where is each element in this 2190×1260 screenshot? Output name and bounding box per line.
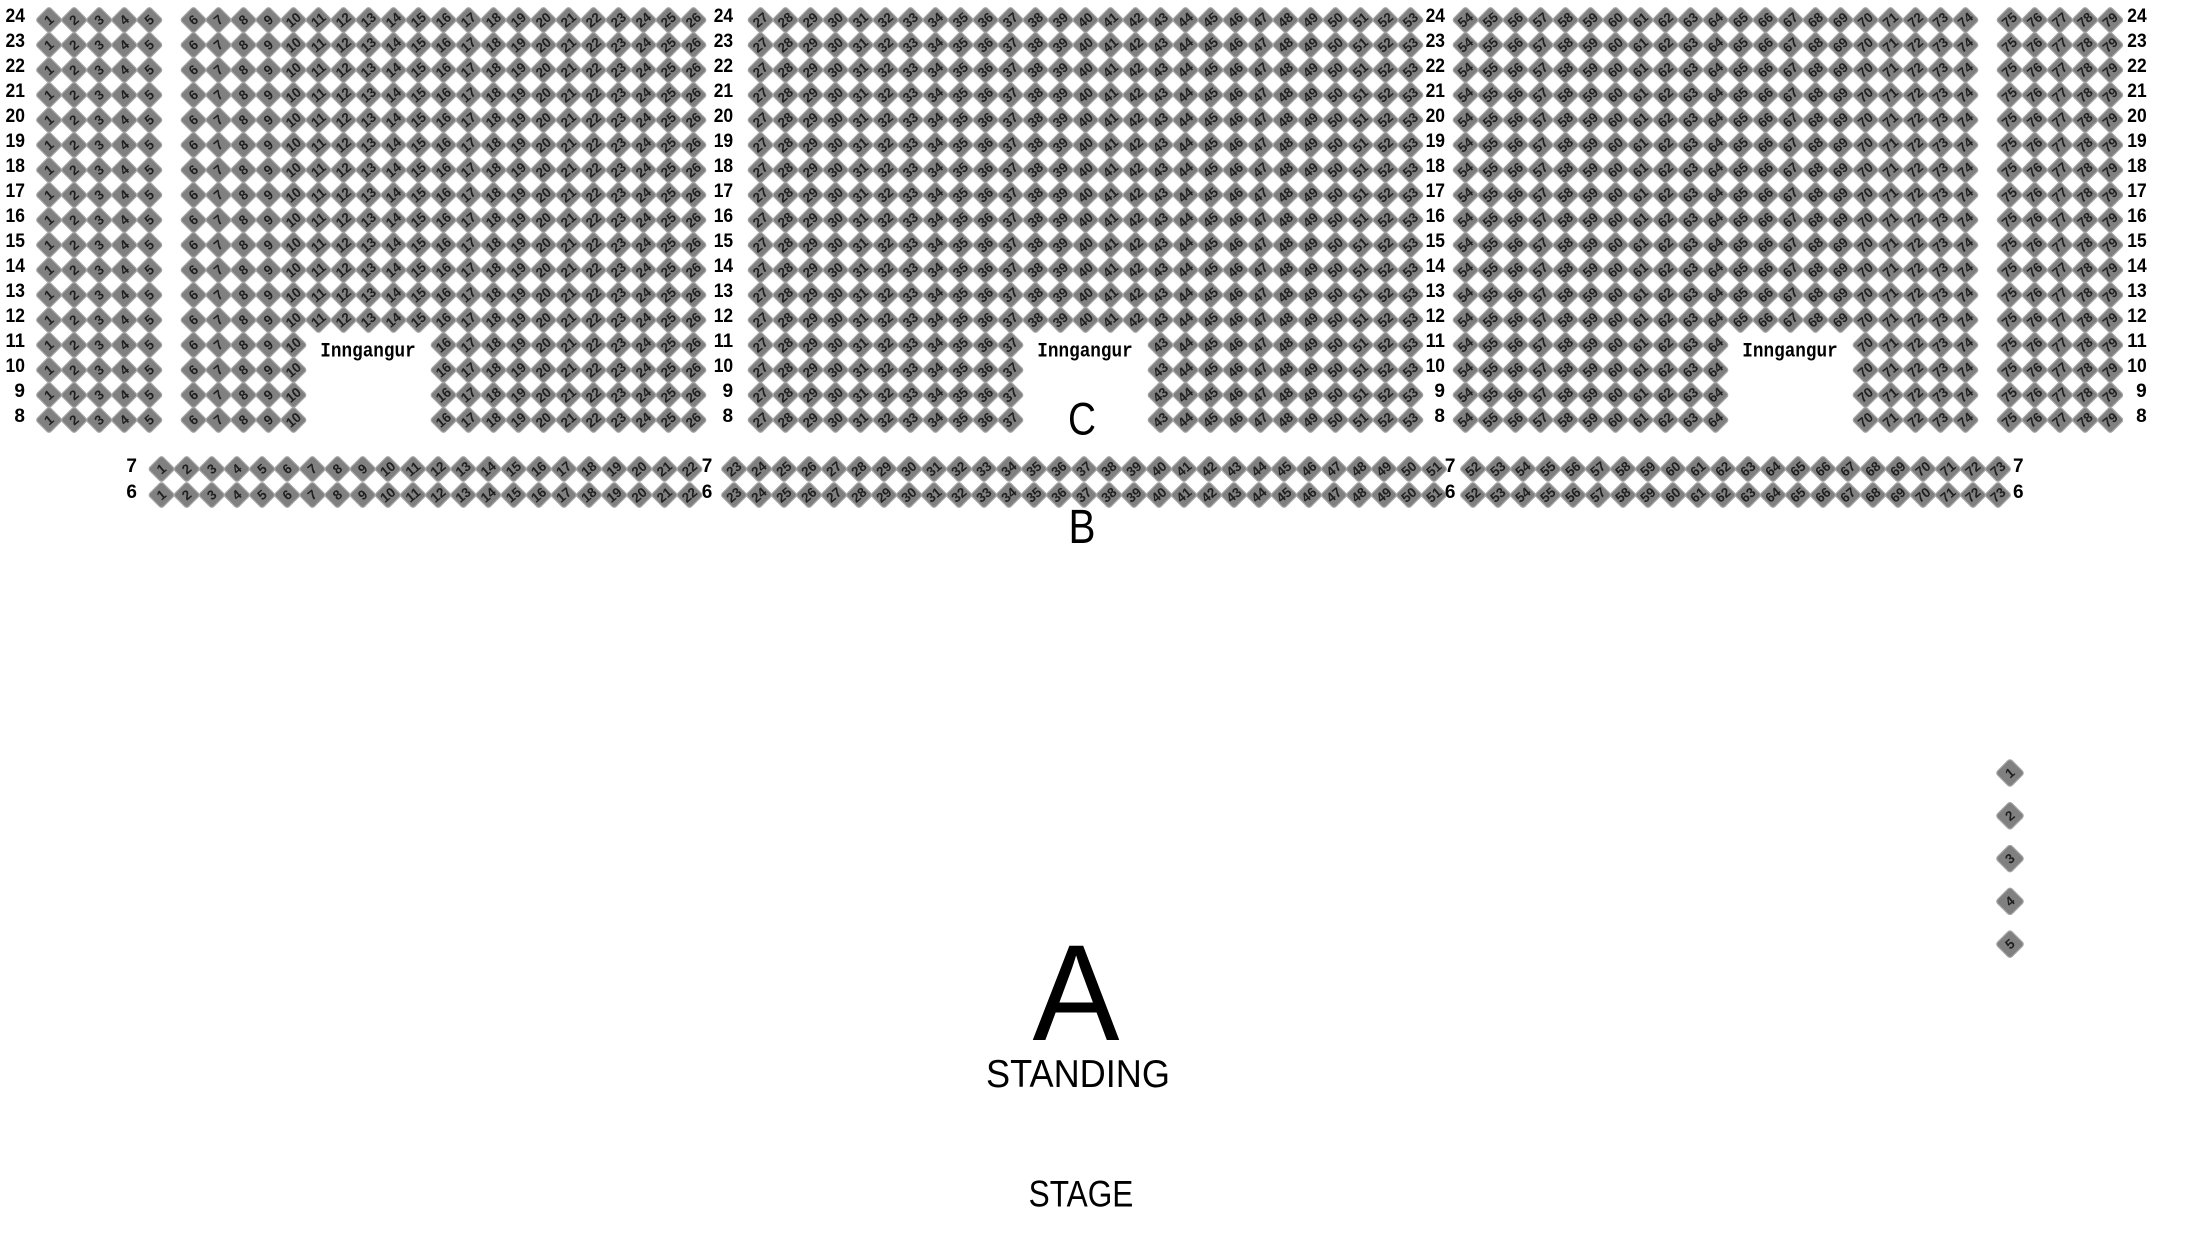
svg-text:40: 40	[1075, 84, 1096, 105]
svg-text:24: 24	[633, 234, 655, 255]
svg-text:50: 50	[1325, 59, 1346, 80]
svg-text:STANDING: STANDING	[986, 1053, 1170, 1096]
svg-text:Inngangur: Inngangur	[320, 341, 416, 364]
svg-text:74: 74	[1955, 384, 1977, 405]
svg-text:48: 48	[1275, 59, 1297, 80]
svg-text:50: 50	[1325, 134, 1346, 155]
svg-text:24: 24	[633, 109, 655, 130]
svg-text:61: 61	[1630, 284, 1652, 305]
svg-text:27: 27	[823, 484, 844, 505]
svg-text:54: 54	[1512, 484, 1534, 505]
svg-text:76: 76	[2024, 284, 2046, 305]
svg-text:29: 29	[800, 234, 821, 255]
svg-text:76: 76	[2024, 109, 2046, 130]
svg-text:76: 76	[2024, 234, 2046, 255]
svg-text:76: 76	[2024, 359, 2046, 380]
svg-text:29: 29	[800, 309, 821, 330]
svg-text:70: 70	[1855, 109, 1876, 130]
svg-text:69: 69	[1830, 109, 1851, 130]
svg-text:64: 64	[1705, 184, 1727, 205]
svg-text:14: 14	[383, 309, 405, 330]
svg-text:72: 72	[1905, 359, 1926, 380]
svg-text:78: 78	[2075, 284, 2097, 305]
svg-text:57: 57	[1530, 234, 1551, 255]
svg-text:13: 13	[453, 458, 475, 479]
svg-text:36: 36	[975, 309, 997, 330]
svg-text:43: 43	[1150, 209, 1172, 230]
svg-text:25: 25	[658, 359, 680, 380]
svg-text:70: 70	[1855, 34, 1876, 55]
svg-text:37: 37	[1000, 9, 1021, 30]
svg-text:71: 71	[1880, 109, 1902, 130]
svg-text:45: 45	[1200, 384, 1222, 405]
svg-text:39: 39	[1050, 309, 1071, 330]
svg-text:12: 12	[333, 34, 354, 55]
svg-text:69: 69	[1830, 234, 1851, 255]
svg-text:34: 34	[925, 209, 947, 230]
svg-text:34: 34	[925, 109, 947, 130]
svg-text:40: 40	[1075, 309, 1096, 330]
svg-text:16: 16	[433, 359, 455, 380]
svg-text:34: 34	[925, 34, 947, 55]
svg-text:48: 48	[1275, 259, 1297, 280]
svg-text:40: 40	[1075, 134, 1096, 155]
svg-text:74: 74	[1955, 259, 1977, 280]
svg-text:33: 33	[900, 334, 922, 355]
svg-text:57: 57	[1530, 84, 1551, 105]
svg-text:44: 44	[1175, 159, 1197, 180]
svg-text:59: 59	[1580, 359, 1601, 380]
svg-text:57: 57	[1530, 109, 1551, 130]
svg-text:32: 32	[875, 209, 896, 230]
svg-text:67: 67	[1780, 234, 1801, 255]
svg-text:67: 67	[1780, 109, 1801, 130]
svg-text:43: 43	[1150, 9, 1172, 30]
svg-text:36: 36	[975, 234, 997, 255]
svg-text:78: 78	[2075, 259, 2097, 280]
svg-text:76: 76	[2024, 309, 2046, 330]
svg-text:60: 60	[1605, 184, 1626, 205]
svg-text:49: 49	[1300, 409, 1321, 430]
svg-text:72: 72	[1905, 409, 1926, 430]
svg-text:58: 58	[1612, 458, 1634, 479]
svg-text:53: 53	[1400, 134, 1422, 155]
svg-text:16: 16	[528, 458, 550, 479]
svg-text:42: 42	[1125, 34, 1146, 55]
svg-text:36: 36	[975, 384, 997, 405]
svg-text:19: 19	[508, 209, 529, 230]
svg-text:68: 68	[1805, 184, 1827, 205]
svg-text:47: 47	[1250, 334, 1271, 355]
svg-text:24: 24	[633, 384, 655, 405]
svg-text:19: 19	[508, 59, 529, 80]
svg-text:57: 57	[1530, 334, 1551, 355]
svg-text:19: 19	[508, 409, 529, 430]
svg-text:60: 60	[1605, 134, 1626, 155]
svg-text:37: 37	[1000, 184, 1021, 205]
svg-text:60: 60	[1605, 159, 1626, 180]
svg-text:76: 76	[2024, 184, 2046, 205]
svg-text:48: 48	[1275, 284, 1297, 305]
svg-text:22: 22	[583, 9, 604, 30]
svg-text:50: 50	[1325, 359, 1346, 380]
svg-text:70: 70	[1855, 209, 1876, 230]
svg-text:64: 64	[1705, 259, 1727, 280]
svg-text:6: 6	[1445, 482, 1456, 503]
svg-text:53: 53	[1400, 209, 1422, 230]
svg-text:11: 11	[308, 159, 329, 180]
svg-text:56: 56	[1505, 184, 1527, 205]
svg-text:54: 54	[1455, 209, 1477, 230]
svg-text:40: 40	[1075, 234, 1096, 255]
svg-text:27: 27	[750, 59, 771, 80]
svg-text:27: 27	[750, 234, 771, 255]
svg-text:31: 31	[850, 59, 872, 80]
svg-text:31: 31	[850, 334, 872, 355]
svg-text:20: 20	[533, 234, 554, 255]
svg-text:52: 52	[1375, 384, 1396, 405]
svg-text:79: 79	[2100, 334, 2121, 355]
svg-text:79: 79	[2100, 34, 2121, 55]
svg-text:77: 77	[2049, 359, 2070, 380]
svg-text:21: 21	[558, 284, 580, 305]
svg-text:41: 41	[1100, 134, 1122, 155]
svg-text:14: 14	[383, 259, 405, 280]
svg-text:28: 28	[848, 484, 870, 505]
svg-text:59: 59	[1580, 109, 1601, 130]
svg-text:16: 16	[433, 384, 455, 405]
svg-text:75: 75	[1999, 9, 2021, 30]
svg-text:39: 39	[1050, 259, 1071, 280]
svg-text:35: 35	[1023, 484, 1045, 505]
svg-text:55: 55	[1480, 334, 1502, 355]
svg-text:54: 54	[1455, 359, 1477, 380]
svg-text:70: 70	[1855, 184, 1876, 205]
svg-text:7: 7	[702, 456, 713, 477]
svg-text:35: 35	[950, 309, 972, 330]
svg-text:72: 72	[1905, 384, 1926, 405]
svg-text:65: 65	[1730, 309, 1752, 330]
svg-text:38: 38	[1025, 84, 1047, 105]
svg-text:50: 50	[1325, 334, 1346, 355]
svg-text:73: 73	[1930, 234, 1952, 255]
svg-text:64: 64	[1705, 84, 1727, 105]
svg-text:66: 66	[1755, 84, 1777, 105]
svg-text:65: 65	[1730, 234, 1752, 255]
svg-text:30: 30	[825, 134, 846, 155]
svg-text:35: 35	[950, 59, 972, 80]
svg-text:59: 59	[1580, 59, 1601, 80]
svg-text:46: 46	[1225, 9, 1247, 30]
svg-text:13: 13	[358, 234, 380, 255]
svg-text:24: 24	[633, 84, 655, 105]
svg-text:15: 15	[408, 259, 430, 280]
svg-text:25: 25	[658, 209, 680, 230]
svg-text:43: 43	[1150, 234, 1172, 255]
svg-text:12: 12	[333, 234, 354, 255]
svg-text:44: 44	[1175, 409, 1197, 430]
svg-text:65: 65	[1730, 109, 1752, 130]
svg-text:24: 24	[748, 458, 770, 479]
svg-text:46: 46	[1225, 259, 1247, 280]
svg-text:62: 62	[1712, 458, 1733, 479]
svg-text:58: 58	[1612, 484, 1634, 505]
svg-text:72: 72	[1962, 484, 1983, 505]
svg-text:49: 49	[1300, 309, 1321, 330]
svg-text:38: 38	[1025, 284, 1047, 305]
svg-text:63: 63	[1737, 484, 1759, 505]
svg-text:70: 70	[1855, 159, 1876, 180]
svg-text:47: 47	[1250, 159, 1271, 180]
svg-text:47: 47	[1250, 384, 1271, 405]
svg-text:61: 61	[1630, 9, 1652, 30]
svg-text:18: 18	[483, 334, 505, 355]
svg-text:18: 18	[483, 159, 505, 180]
svg-text:8: 8	[723, 406, 734, 427]
svg-text:22: 22	[583, 334, 604, 355]
svg-text:45: 45	[1273, 458, 1295, 479]
svg-text:54: 54	[1512, 458, 1534, 479]
svg-text:78: 78	[2075, 184, 2097, 205]
svg-text:43: 43	[1150, 134, 1172, 155]
svg-text:18: 18	[483, 284, 505, 305]
svg-text:54: 54	[1455, 184, 1477, 205]
svg-text:60: 60	[1662, 484, 1683, 505]
svg-text:57: 57	[1530, 259, 1551, 280]
svg-text:42: 42	[1125, 184, 1146, 205]
svg-text:45: 45	[1200, 9, 1222, 30]
svg-text:41: 41	[1100, 109, 1122, 130]
svg-text:64: 64	[1705, 159, 1727, 180]
svg-text:71: 71	[1880, 309, 1902, 330]
svg-text:18: 18	[483, 84, 505, 105]
svg-text:26: 26	[683, 359, 705, 380]
svg-text:29: 29	[873, 458, 894, 479]
svg-text:17: 17	[553, 484, 574, 505]
svg-text:71: 71	[1880, 134, 1902, 155]
svg-text:51: 51	[1350, 134, 1372, 155]
svg-text:38: 38	[1025, 159, 1047, 180]
svg-text:34: 34	[925, 9, 947, 30]
svg-text:32: 32	[875, 384, 896, 405]
svg-text:15: 15	[503, 484, 525, 505]
svg-text:56: 56	[1505, 84, 1527, 105]
svg-text:21: 21	[558, 409, 580, 430]
svg-text:19: 19	[508, 109, 529, 130]
svg-text:32: 32	[948, 458, 969, 479]
svg-text:60: 60	[1605, 359, 1626, 380]
svg-text:18: 18	[714, 156, 733, 177]
svg-text:56: 56	[1505, 234, 1527, 255]
svg-text:47: 47	[1250, 309, 1271, 330]
svg-text:44: 44	[1175, 384, 1197, 405]
svg-text:31: 31	[850, 184, 872, 205]
svg-text:36: 36	[975, 184, 997, 205]
svg-text:64: 64	[1705, 109, 1727, 130]
svg-text:20: 20	[533, 259, 554, 280]
svg-text:26: 26	[683, 159, 705, 180]
svg-text:28: 28	[775, 9, 797, 30]
svg-text:76: 76	[2024, 84, 2046, 105]
svg-text:28: 28	[775, 384, 797, 405]
svg-text:30: 30	[825, 84, 846, 105]
svg-text:23: 23	[608, 234, 630, 255]
svg-text:17: 17	[458, 34, 479, 55]
svg-text:10: 10	[283, 159, 304, 180]
svg-text:75: 75	[1999, 409, 2021, 430]
svg-text:16: 16	[433, 284, 455, 305]
svg-text:52: 52	[1375, 59, 1396, 80]
svg-text:40: 40	[1075, 109, 1096, 130]
svg-text:40: 40	[1075, 284, 1096, 305]
svg-text:22: 22	[583, 59, 604, 80]
svg-text:29: 29	[800, 34, 821, 55]
svg-text:60: 60	[1605, 84, 1626, 105]
svg-text:11: 11	[308, 259, 329, 280]
svg-text:76: 76	[2024, 209, 2046, 230]
svg-text:10: 10	[283, 59, 304, 80]
svg-text:79: 79	[2100, 234, 2121, 255]
svg-text:33: 33	[900, 84, 922, 105]
svg-text:31: 31	[850, 259, 872, 280]
svg-text:Inngangur: Inngangur	[1742, 341, 1838, 364]
svg-text:51: 51	[1350, 109, 1372, 130]
svg-text:18: 18	[483, 209, 505, 230]
svg-text:41: 41	[1100, 159, 1122, 180]
svg-text:71: 71	[1880, 84, 1902, 105]
svg-text:19: 19	[508, 259, 529, 280]
svg-text:33: 33	[900, 9, 922, 30]
svg-text:74: 74	[1955, 84, 1977, 105]
svg-text:23: 23	[608, 159, 630, 180]
svg-text:56: 56	[1505, 259, 1527, 280]
svg-text:59: 59	[1580, 134, 1601, 155]
svg-text:60: 60	[1605, 34, 1626, 55]
svg-text:73: 73	[1987, 484, 2009, 505]
svg-text:34: 34	[925, 334, 947, 355]
svg-text:60: 60	[1605, 384, 1626, 405]
svg-text:29: 29	[873, 484, 894, 505]
svg-text:50: 50	[1325, 84, 1346, 105]
svg-text:79: 79	[2100, 134, 2121, 155]
svg-text:49: 49	[1300, 334, 1321, 355]
svg-text:50: 50	[1325, 34, 1346, 55]
svg-text:17: 17	[458, 184, 479, 205]
svg-text:61: 61	[1630, 309, 1652, 330]
svg-text:17: 17	[458, 109, 479, 130]
svg-text:75: 75	[1999, 134, 2021, 155]
svg-text:61: 61	[1630, 84, 1652, 105]
svg-text:56: 56	[1505, 209, 1527, 230]
svg-text:13: 13	[2127, 281, 2146, 302]
svg-text:43: 43	[1150, 409, 1172, 430]
svg-text:60: 60	[1605, 334, 1626, 355]
svg-text:42: 42	[1125, 259, 1146, 280]
svg-text:12: 12	[333, 309, 354, 330]
svg-text:72: 72	[1905, 134, 1926, 155]
svg-text:22: 22	[583, 34, 604, 55]
svg-text:77: 77	[2049, 134, 2070, 155]
svg-text:68: 68	[1805, 284, 1827, 305]
svg-text:51: 51	[1350, 9, 1372, 30]
svg-text:37: 37	[1000, 259, 1021, 280]
svg-text:13: 13	[453, 484, 475, 505]
svg-text:78: 78	[2075, 234, 2097, 255]
svg-text:36: 36	[975, 284, 997, 305]
svg-text:65: 65	[1787, 458, 1809, 479]
svg-text:28: 28	[775, 109, 797, 130]
svg-text:36: 36	[975, 359, 997, 380]
svg-text:79: 79	[2100, 409, 2121, 430]
svg-text:25: 25	[658, 409, 680, 430]
svg-text:10: 10	[714, 356, 733, 377]
svg-text:14: 14	[383, 109, 405, 130]
svg-text:70: 70	[1855, 284, 1876, 305]
svg-text:73: 73	[1930, 84, 1952, 105]
svg-text:51: 51	[1350, 284, 1372, 305]
svg-text:58: 58	[1555, 159, 1577, 180]
svg-text:63: 63	[1680, 59, 1702, 80]
svg-text:54: 54	[1455, 134, 1477, 155]
svg-text:20: 20	[533, 384, 554, 405]
svg-text:20: 20	[629, 484, 650, 505]
svg-text:79: 79	[2100, 84, 2121, 105]
svg-text:10: 10	[283, 234, 304, 255]
svg-text:65: 65	[1730, 134, 1752, 155]
svg-text:74: 74	[1955, 184, 1977, 205]
svg-text:49: 49	[1300, 209, 1321, 230]
svg-text:42: 42	[1125, 159, 1146, 180]
svg-text:34: 34	[925, 359, 947, 380]
svg-text:40: 40	[1075, 59, 1096, 80]
svg-text:12: 12	[333, 9, 354, 30]
svg-text:63: 63	[1680, 359, 1702, 380]
svg-text:48: 48	[1275, 34, 1297, 55]
svg-text:16: 16	[433, 234, 455, 255]
svg-text:72: 72	[1905, 34, 1926, 55]
svg-text:38: 38	[1025, 109, 1047, 130]
svg-text:72: 72	[1905, 184, 1926, 205]
svg-text:48: 48	[1275, 159, 1297, 180]
svg-text:41: 41	[1100, 234, 1122, 255]
svg-text:22: 22	[583, 234, 604, 255]
svg-text:22: 22	[2127, 56, 2146, 77]
svg-text:73: 73	[1930, 284, 1952, 305]
svg-text:35: 35	[950, 159, 972, 180]
svg-text:7: 7	[2013, 456, 2024, 477]
svg-text:15: 15	[1426, 231, 1446, 252]
svg-text:25: 25	[658, 9, 680, 30]
svg-text:67: 67	[1780, 259, 1801, 280]
svg-text:41: 41	[1100, 59, 1122, 80]
svg-text:30: 30	[825, 184, 846, 205]
svg-text:63: 63	[1680, 234, 1702, 255]
svg-text:15: 15	[408, 109, 430, 130]
svg-text:16: 16	[433, 109, 455, 130]
svg-text:74: 74	[1955, 59, 1977, 80]
svg-text:STAGE: STAGE	[1029, 1174, 1134, 1215]
svg-text:35: 35	[950, 259, 972, 280]
svg-text:33: 33	[900, 209, 922, 230]
svg-text:52: 52	[1462, 458, 1483, 479]
svg-text:44: 44	[1175, 59, 1197, 80]
svg-text:11: 11	[2127, 331, 2147, 352]
svg-text:9: 9	[1434, 381, 1445, 402]
svg-text:46: 46	[1225, 59, 1247, 80]
svg-text:28: 28	[775, 59, 797, 80]
svg-text:18: 18	[483, 359, 505, 380]
svg-text:55: 55	[1480, 184, 1502, 205]
